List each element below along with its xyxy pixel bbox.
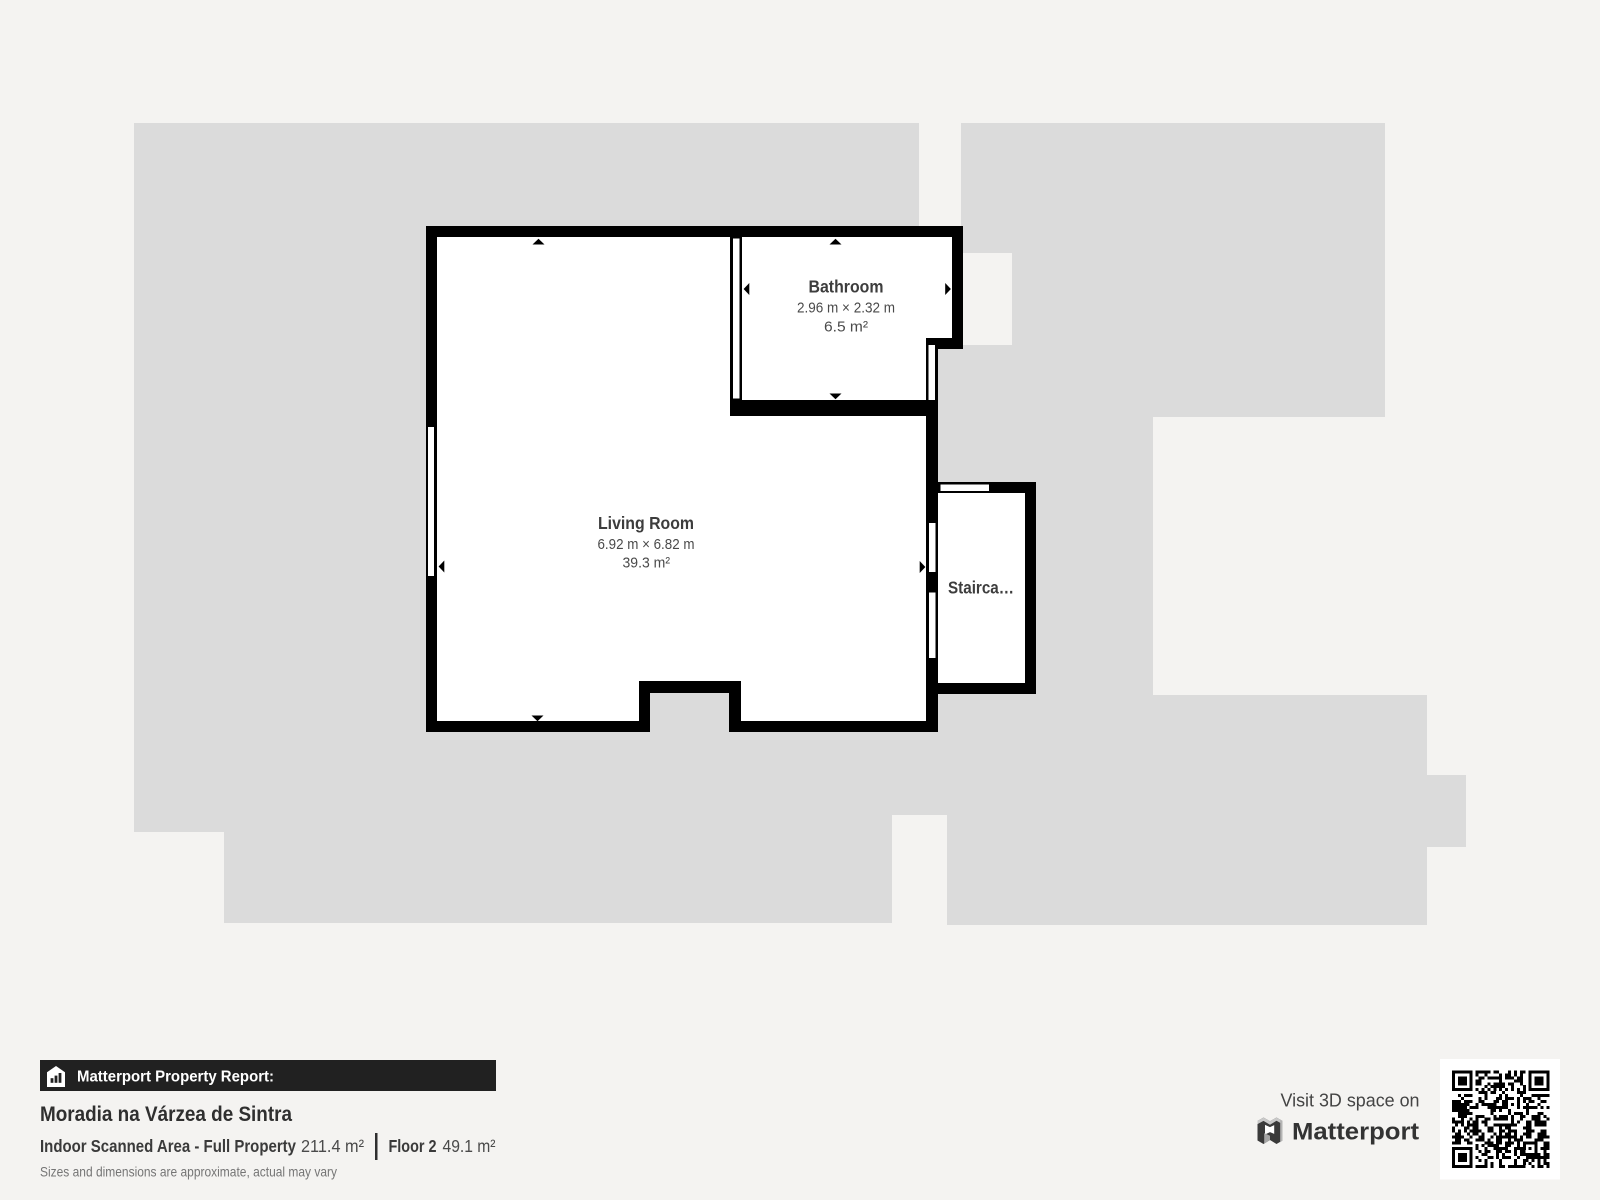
svg-text:Living Room: Living Room bbox=[598, 513, 694, 533]
svg-text:Stairca…: Stairca… bbox=[948, 578, 1014, 598]
svg-text:Visit 3D space on: Visit 3D space on bbox=[1281, 1091, 1420, 1111]
svg-text:2.96 m × 2.32 m: 2.96 m × 2.32 m bbox=[797, 300, 895, 317]
svg-text:Bathroom: Bathroom bbox=[809, 277, 884, 297]
svg-text:211.4 m²: 211.4 m² bbox=[301, 1136, 364, 1156]
svg-text:6.92 m × 6.82 m: 6.92 m × 6.82 m bbox=[598, 536, 695, 553]
svg-text:6.5 m²: 6.5 m² bbox=[824, 319, 868, 336]
svg-text:Sizes and dimensions are appro: Sizes and dimensions are approximate, ac… bbox=[40, 1164, 337, 1180]
svg-text:Matterport: Matterport bbox=[1292, 1119, 1419, 1146]
svg-text:Indoor Scanned Area - Full Pro: Indoor Scanned Area - Full Property bbox=[40, 1136, 296, 1156]
svg-text:Floor 2: Floor 2 bbox=[389, 1136, 437, 1156]
svg-text:49.1 m²: 49.1 m² bbox=[443, 1136, 496, 1156]
svg-text:39.3 m²: 39.3 m² bbox=[623, 555, 671, 572]
svg-text:Matterport Property Report:: Matterport Property Report: bbox=[77, 1069, 274, 1086]
svg-text:Moradia na Várzea de Sintra: Moradia na Várzea de Sintra bbox=[40, 1102, 293, 1126]
